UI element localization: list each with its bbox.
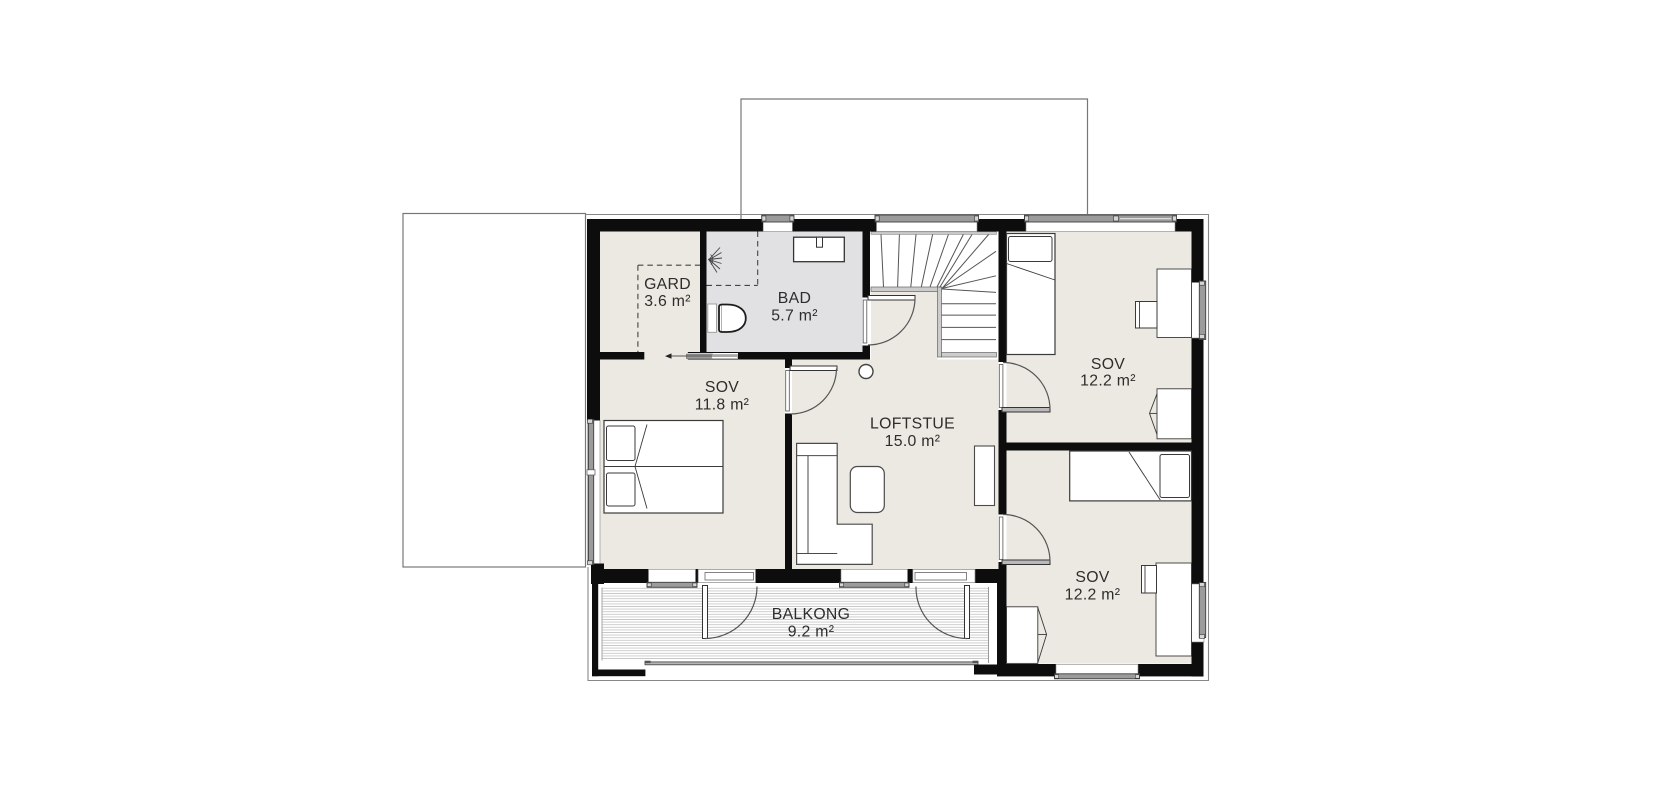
svg-text:12.2 m²: 12.2 m² [1065,587,1121,604]
svg-text:3.6 m²: 3.6 m² [644,293,691,310]
svg-text:BALKONG: BALKONG [772,606,850,623]
svg-text:BAD: BAD [778,290,811,307]
svg-text:11.8 m²: 11.8 m² [695,397,749,414]
svg-text:GARD: GARD [644,276,691,293]
svg-text:LOFTSTUE: LOFTSTUE [870,416,955,433]
svg-text:12.2 m²: 12.2 m² [1080,373,1136,390]
svg-text:SOV: SOV [1091,356,1125,373]
svg-text:SOV: SOV [1075,569,1109,586]
svg-text:9.2 m²: 9.2 m² [788,624,835,641]
svg-text:15.0 m²: 15.0 m² [885,433,941,450]
svg-text:SOV: SOV [705,379,739,396]
svg-text:5.7 m²: 5.7 m² [771,308,818,325]
